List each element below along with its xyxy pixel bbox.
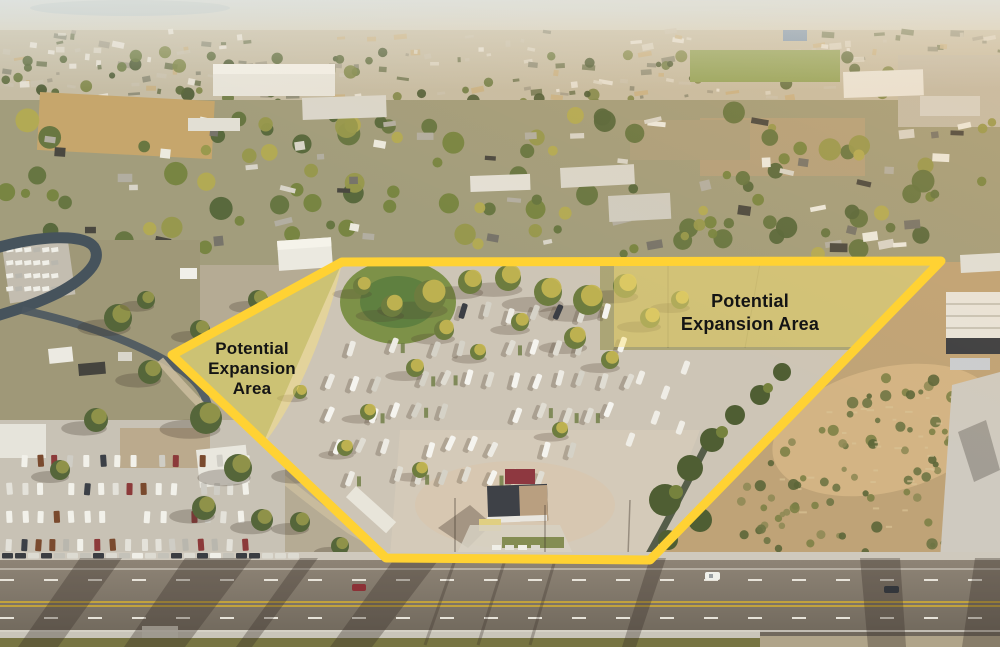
- aerial-photo-canvas: [0, 0, 1000, 647]
- atmospheric-haze: [0, 0, 1000, 90]
- aerial-photo: Potential Expansion Area Potential Expan…: [0, 0, 1000, 647]
